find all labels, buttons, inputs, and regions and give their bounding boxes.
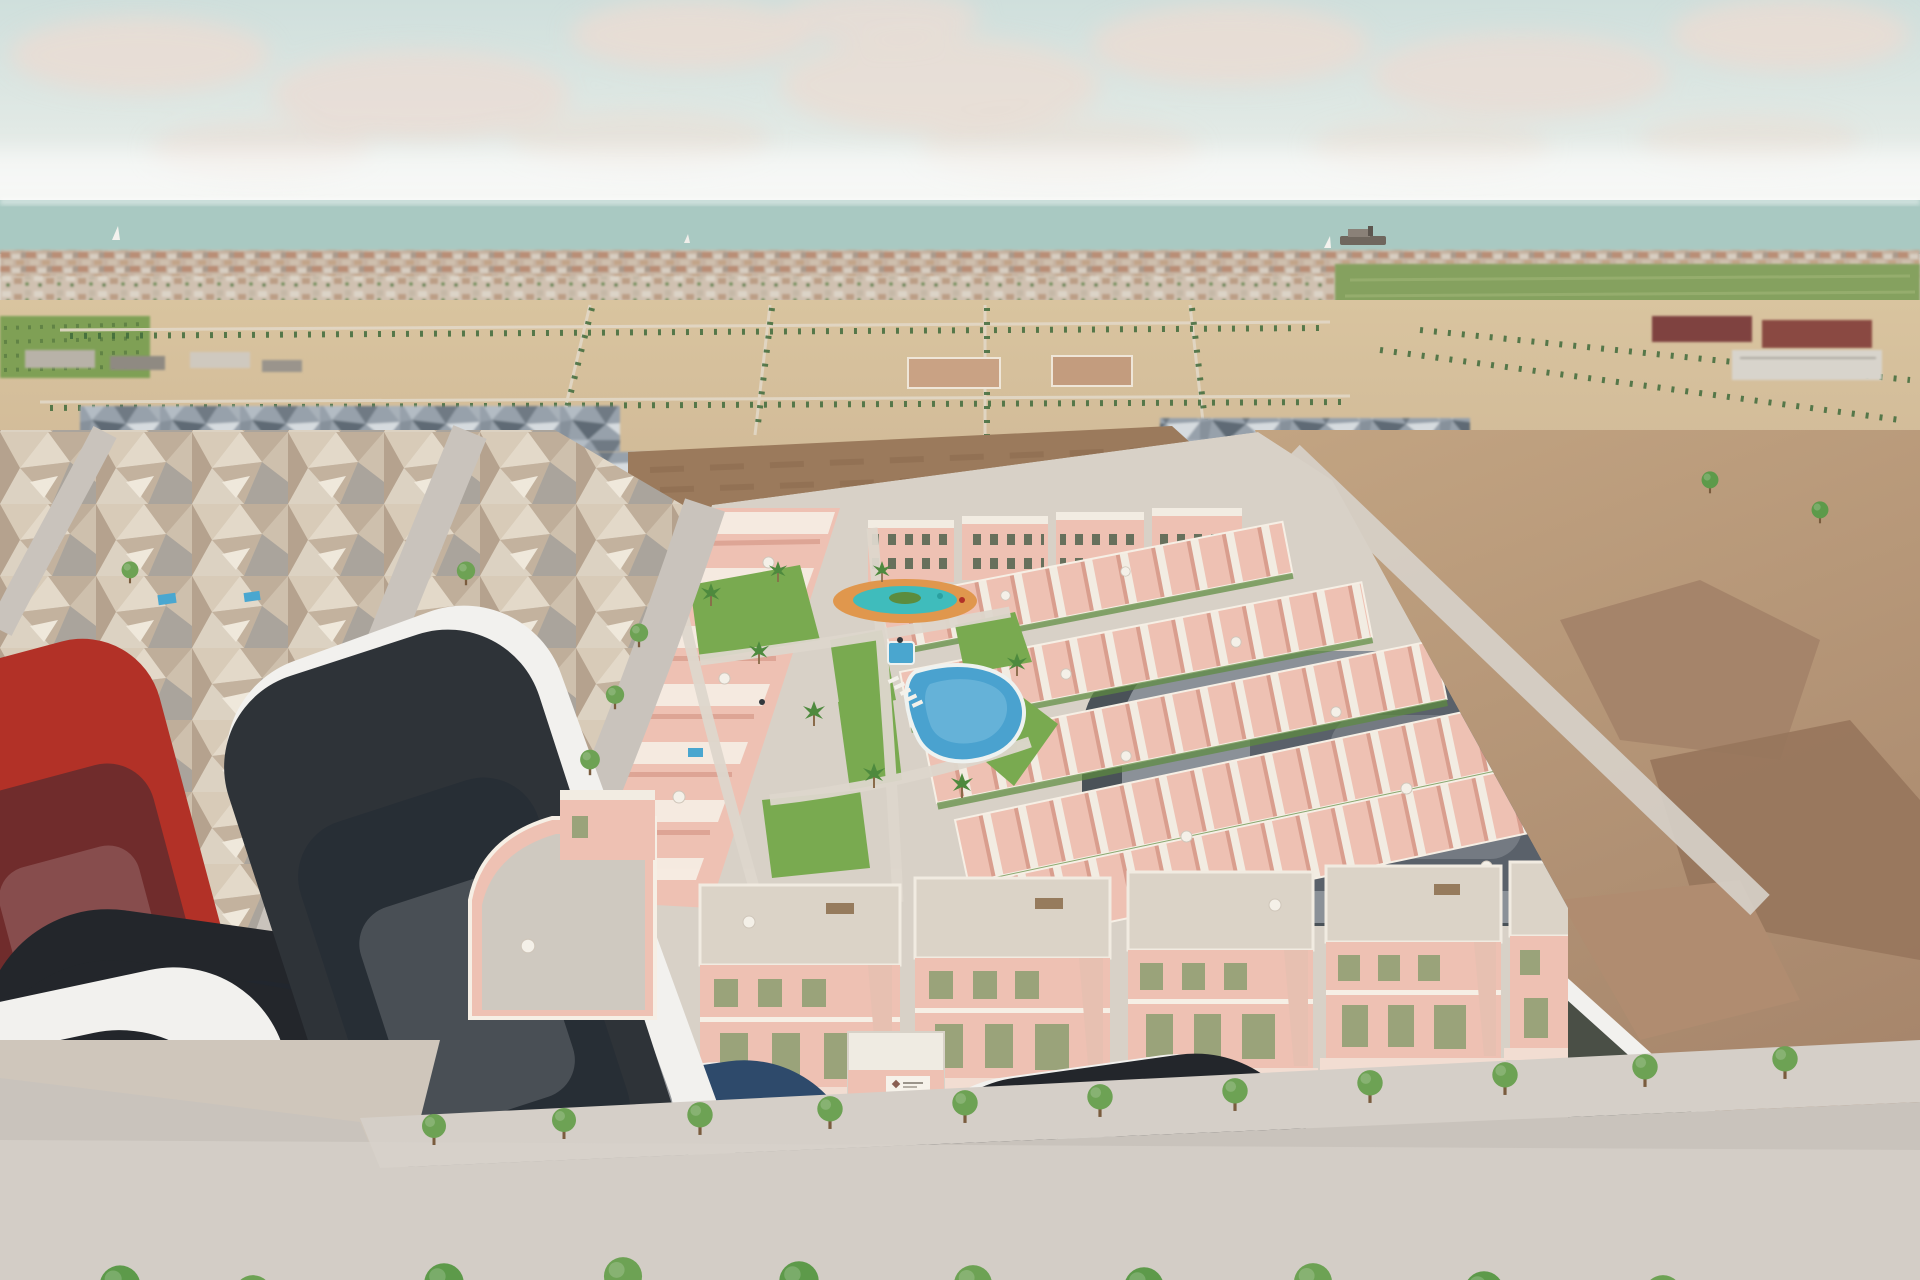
plunge-pool xyxy=(888,642,914,664)
entrance-sign xyxy=(886,1076,930,1092)
townhouse-block xyxy=(1320,866,1506,1070)
parasol xyxy=(521,939,535,953)
sky xyxy=(0,0,1920,208)
kids-splash-pool xyxy=(833,579,977,623)
cloud xyxy=(570,0,810,70)
person xyxy=(759,699,765,705)
rooftop-mini-pool xyxy=(688,748,703,757)
cloud xyxy=(1670,0,1910,71)
sea-water xyxy=(0,200,1920,254)
horizon-line-haze xyxy=(0,198,1920,205)
parasol xyxy=(673,791,685,803)
cloud xyxy=(10,17,270,93)
main-lagoon-pool xyxy=(906,665,1024,761)
sea xyxy=(0,198,1920,254)
street-foreground xyxy=(0,1140,1920,1280)
person xyxy=(897,637,903,643)
aerial-render xyxy=(0,0,1920,1280)
townhouse-block xyxy=(1122,872,1318,1080)
cloud xyxy=(1370,33,1670,117)
render-viewport xyxy=(0,0,1920,1280)
parasol xyxy=(763,557,774,568)
cloud xyxy=(1090,5,1370,85)
entrance-kiosk xyxy=(848,1032,944,1098)
parasol xyxy=(719,673,730,684)
person xyxy=(959,597,965,603)
